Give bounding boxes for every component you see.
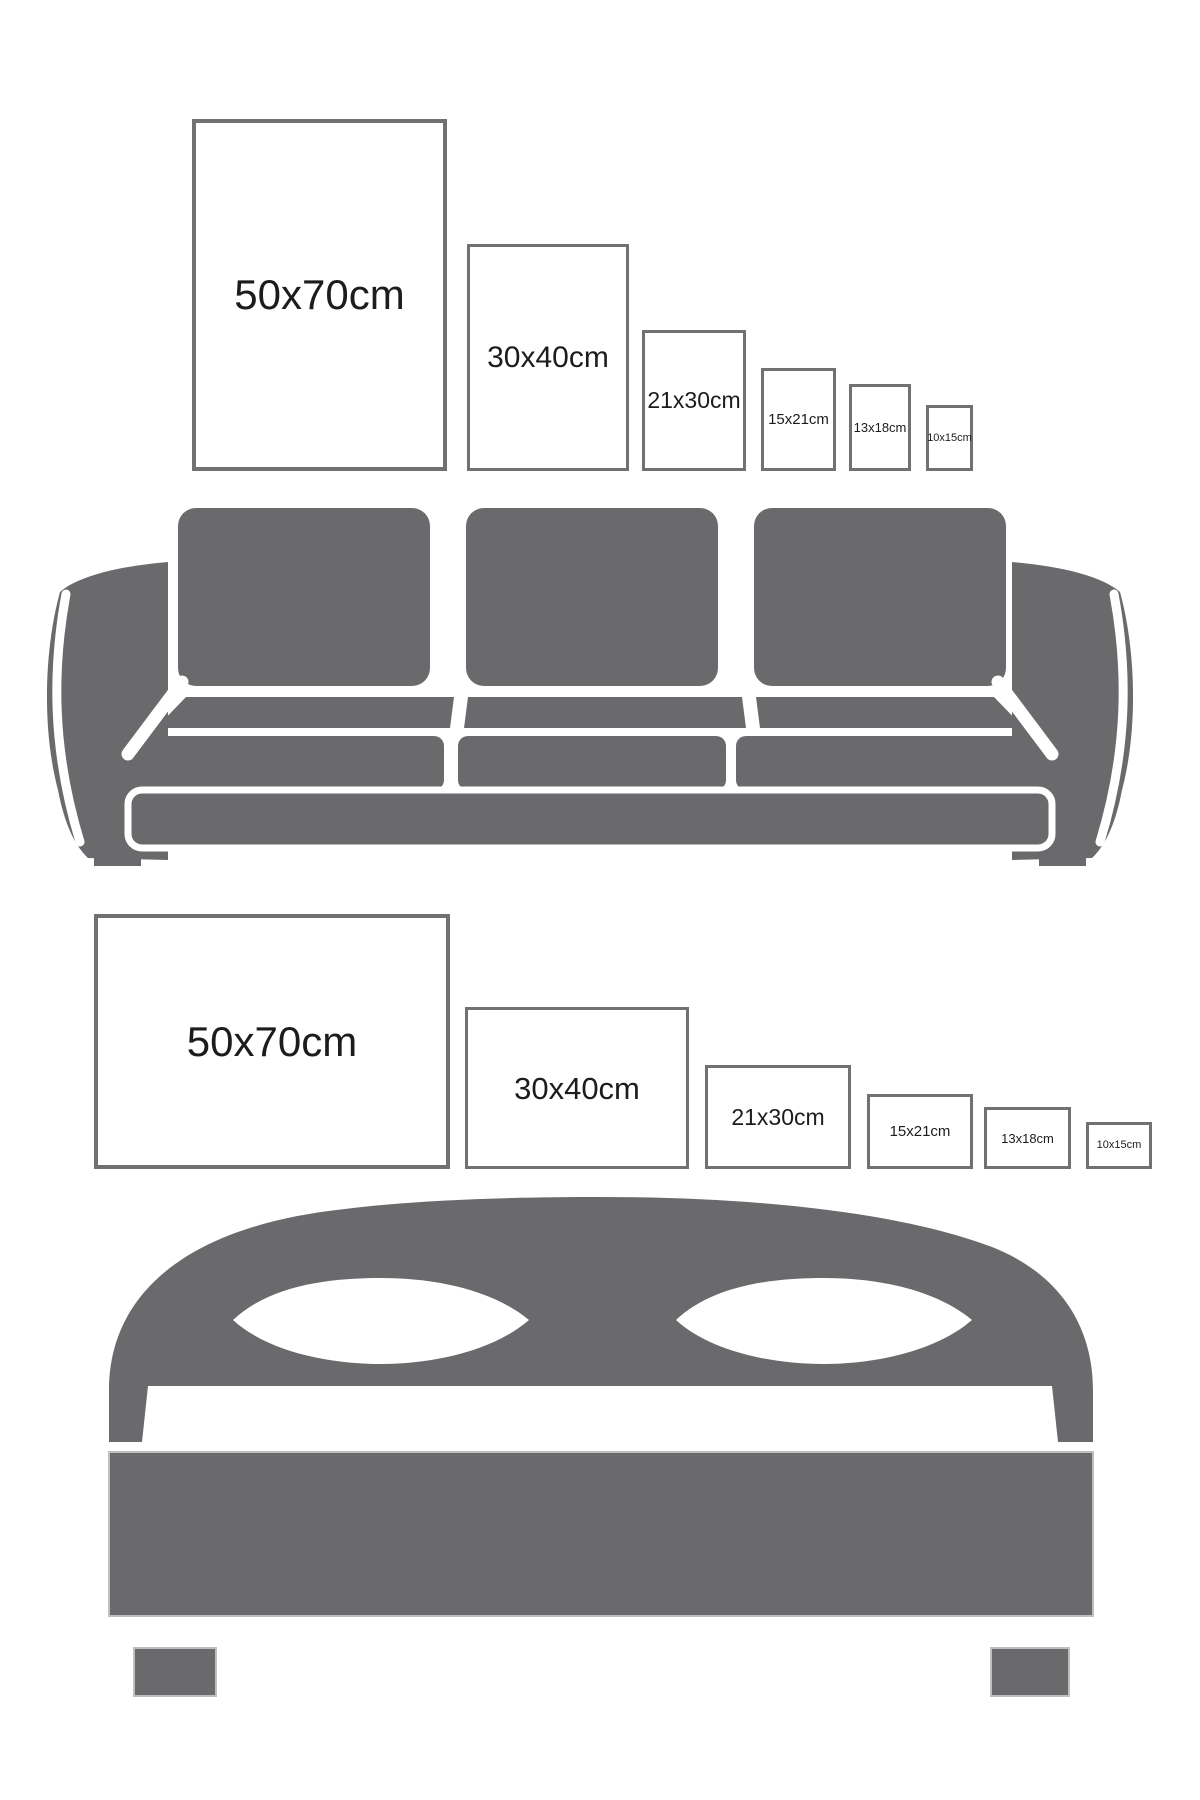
frame-size-label: 15x21cm (890, 1124, 951, 1139)
frame-landscape-13x18: 13x18cm (984, 1107, 1071, 1169)
frame-size-label: 13x18cm (1001, 1132, 1054, 1145)
frame-size-label: 50x70cm (234, 274, 404, 316)
frame-landscape-50x70: 50x70cm (94, 914, 450, 1169)
frame-size-label: 10x15cm (1097, 1140, 1142, 1151)
frame-size-label: 13x18cm (854, 421, 907, 434)
frame-landscape-30x40: 30x40cm (465, 1007, 689, 1169)
frame-size-label: 21x30cm (731, 1106, 824, 1129)
frame-portrait-10x15: 10x15cm (926, 405, 973, 471)
frame-portrait-50x70: 50x70cm (192, 119, 447, 471)
sofa-icon (0, 470, 1200, 890)
bed-icon (0, 1190, 1200, 1710)
frame-landscape-15x21: 15x21cm (867, 1094, 973, 1169)
frame-portrait-21x30: 21x30cm (642, 330, 746, 471)
frame-size-label: 30x40cm (487, 343, 609, 373)
frame-landscape-21x30: 21x30cm (705, 1065, 851, 1169)
frame-portrait-13x18: 13x18cm (849, 384, 911, 471)
frame-size-label: 10x15cm (927, 433, 972, 444)
frame-size-label: 15x21cm (768, 412, 829, 427)
frame-landscape-10x15: 10x15cm (1086, 1122, 1152, 1169)
frame-size-label: 50x70cm (187, 1021, 357, 1063)
frame-portrait-15x21: 15x21cm (761, 368, 836, 471)
frame-size-label: 30x40cm (514, 1073, 640, 1104)
frame-size-label: 21x30cm (647, 389, 740, 412)
frame-portrait-30x40: 30x40cm (467, 244, 629, 471)
poster-size-guide: 50x70cm 30x40cm 21x30cm 15x21cm 13x18cm … (0, 0, 1200, 1800)
